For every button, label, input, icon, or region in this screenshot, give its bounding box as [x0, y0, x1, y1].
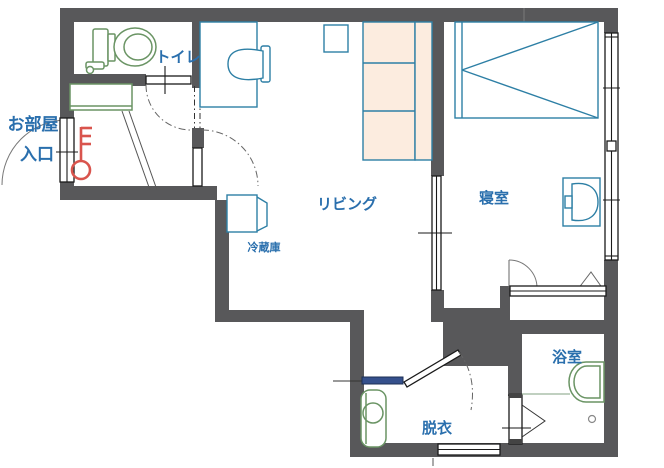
- toilet-icon: [86, 28, 156, 74]
- entrance-label-line2: 入口: [20, 145, 54, 165]
- wall-bathroom-top: [500, 320, 618, 334]
- fridge-icon: [227, 195, 267, 232]
- toilet-door-arc: [146, 85, 190, 130]
- closet-door-arc: [509, 260, 537, 288]
- toilet-door: [146, 76, 191, 84]
- bedroom: [455, 22, 620, 260]
- wall-top: [60, 8, 618, 22]
- toilet-label: トイレ: [155, 48, 200, 66]
- wall-post-hall: [192, 128, 204, 148]
- floor-plan: トイレ お部屋 入口 リビング 寝室 冷蔵庫 脱衣 浴室: [0, 0, 664, 468]
- key-icon: [72, 127, 92, 179]
- genkan-step-lines: [122, 111, 157, 190]
- entrance-area: [2, 84, 157, 190]
- wall-living-bottom: [215, 310, 362, 322]
- closet: [509, 260, 606, 296]
- dressing-door-rail: [362, 377, 403, 384]
- wall-partition-bottom: [431, 290, 444, 322]
- bathroom-label: 浴室: [552, 348, 582, 366]
- floor-plan-svg: トイレ お部屋 入口 リビング 寝室 冷蔵庫 脱衣 浴室: [0, 0, 664, 468]
- dressing-door-panel: [404, 350, 461, 387]
- bed-icon: [455, 22, 598, 118]
- bathroom-door-fold: [522, 405, 545, 437]
- fridge-label: 冷蔵庫: [248, 240, 281, 254]
- wall-hall-bottom: [60, 186, 217, 200]
- entrance-label-line1: お部屋: [8, 114, 59, 135]
- wall-partition-top: [431, 22, 444, 176]
- bathtub-icon: [569, 362, 604, 402]
- bathroom-door: [502, 393, 545, 444]
- desk-chair: [228, 46, 270, 82]
- living-door-arc: [202, 130, 258, 186]
- bedroom-window: [603, 33, 620, 260]
- window-handle: [607, 141, 616, 151]
- drain-icon: [589, 416, 596, 423]
- living-door-panel: [193, 148, 202, 186]
- kitchen-counter: [363, 22, 432, 160]
- bedroom-label: 寝室: [479, 189, 509, 207]
- living-label: リビング: [317, 195, 377, 213]
- dressing-window: [433, 444, 500, 466]
- sliding-door: [418, 176, 452, 290]
- wall-bathroom-left: [508, 334, 522, 396]
- sink-icon: [361, 390, 386, 447]
- wall-top-right-corner: [604, 8, 618, 33]
- shoe-cabinet: [70, 84, 132, 110]
- dressing-label: 脱衣: [422, 419, 452, 437]
- side-table: [324, 25, 348, 52]
- bedroom-chair: [563, 178, 600, 226]
